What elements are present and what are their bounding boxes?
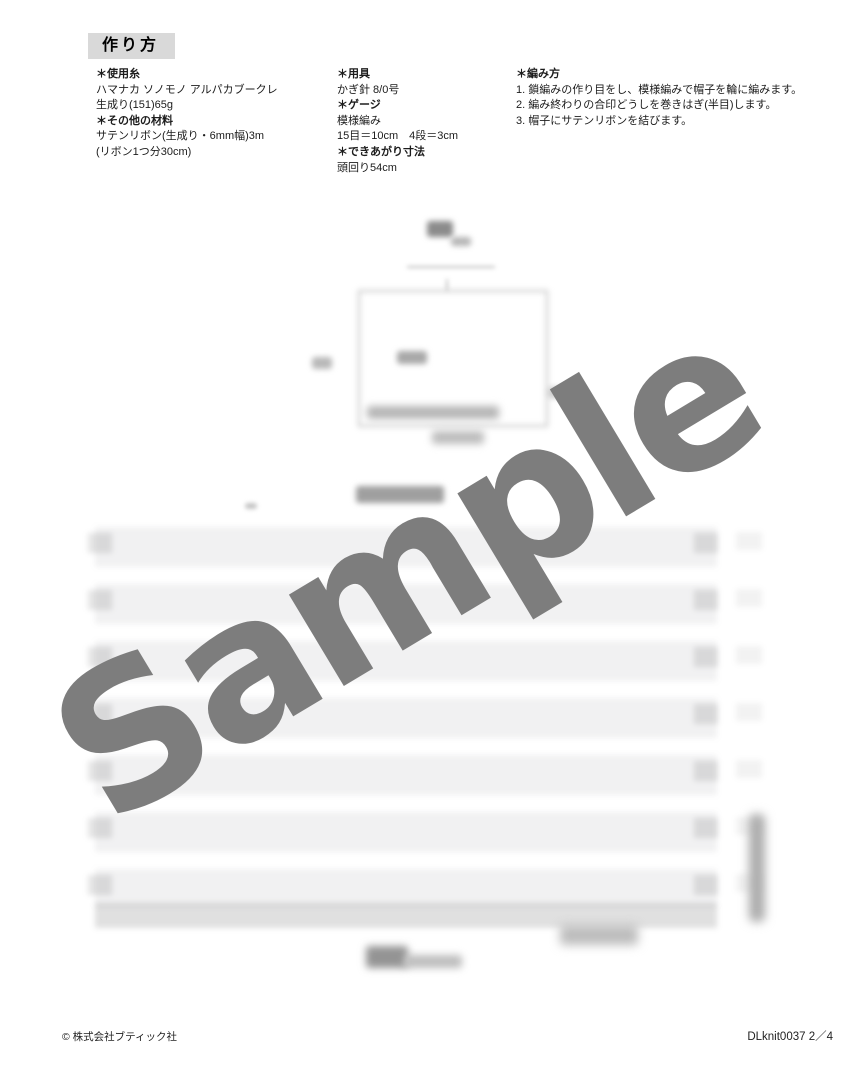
chart-start-label-blur — [560, 925, 638, 945]
tools-heading: ＊用具 — [337, 67, 458, 83]
copyright-notice: © 株式会社ブティック社 — [62, 1029, 177, 1044]
chart-right-row-numbers-blur — [694, 527, 718, 907]
yarn-line: ハマナカ ソノモノ アルパカブークレ — [96, 83, 278, 99]
other-materials-heading: ＊その他の材料 — [96, 114, 278, 130]
instruction-step: 2. 編み終わりの合印どうしを巻きはぎ(半目)します。 — [516, 98, 802, 114]
finished-size-heading: ＊できあがり寸法 — [337, 145, 458, 161]
chart-left-row-numbers-blur — [88, 527, 112, 907]
other-materials-line: サテンリボン(生成り・6mm幅)3m — [96, 129, 278, 145]
gauge-heading: ＊ゲージ — [337, 98, 458, 114]
pattern-page: 作り方 ＊使用糸 ハマナカ ソノモノ アルパカブークレ 生成り(151)65g … — [0, 0, 861, 1067]
tools-section: ＊用具 かぎ針 8/0号 ＊ゲージ 模様編み 15目＝10cm 4段＝3cm ＊… — [337, 67, 458, 176]
yarn-line: 生成り(151)65g — [96, 98, 278, 114]
schematic-top-sublabel-blur — [451, 237, 471, 246]
page-title-label: 作り方 — [102, 37, 159, 54]
schematic-right-dimension-blur — [548, 387, 565, 398]
schematic-top-label-blur — [427, 221, 453, 237]
instructions-heading: ＊編み方 — [516, 67, 802, 83]
schematic-bottom-label-blur — [432, 431, 484, 444]
schematic-center-label-blur — [397, 351, 427, 364]
chart-bottom-sublabel-blur — [404, 955, 462, 968]
instruction-step: 1. 鎖編みの作り目をし、模様編みで帽子を輪に編みます。 — [516, 83, 802, 99]
chart-bottom-label-blur — [366, 946, 408, 968]
gauge-line: 模様編み — [337, 114, 458, 130]
page-number: DLknit0037 2／4 — [747, 1028, 833, 1044]
schematic-top-bracket-blur — [407, 266, 495, 268]
other-materials-line: (リボン1つ分30cm) — [96, 145, 278, 161]
page-title: 作り方 — [88, 33, 175, 59]
tools-value: かぎ針 8/0号 — [337, 83, 458, 99]
schematic-bottom-dimension-blur — [367, 406, 499, 419]
instruction-step: 3. 帽子にサテンリボンを結びます。 — [516, 114, 802, 130]
gauge-line: 15目＝10cm 4段＝3cm — [337, 129, 458, 145]
chart-top-tick-blur — [245, 503, 257, 509]
chart-rows-blur — [95, 527, 717, 907]
chart-title-blur — [356, 486, 444, 503]
materials-section: ＊使用糸 ハマナカ ソノモノ アルパカブークレ 生成り(151)65g ＊その他… — [96, 67, 278, 161]
finished-size-value: 頭回り54cm — [337, 161, 458, 177]
yarn-heading: ＊使用糸 — [96, 67, 278, 83]
schematic-left-dimension-blur — [312, 357, 332, 369]
instructions-section: ＊編み方 1. 鎖編みの作り目をし、模様編みで帽子を輪に編みます。 2. 編み終… — [516, 67, 802, 129]
chart-side-vertical-label-blur — [749, 814, 765, 922]
